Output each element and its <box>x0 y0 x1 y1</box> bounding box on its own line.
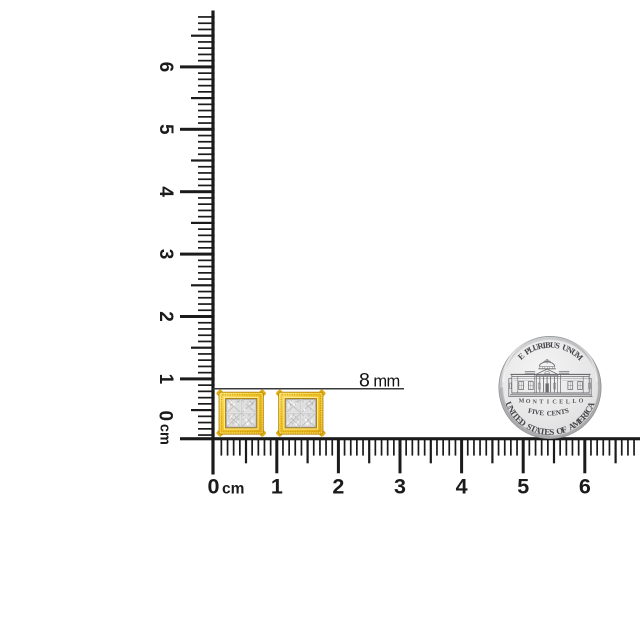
svg-text:2: 2 <box>155 311 176 322</box>
svg-text:2: 2 <box>332 475 344 499</box>
svg-text:T: T <box>539 400 543 406</box>
svg-text:N: N <box>532 399 537 405</box>
svg-text:1: 1 <box>271 475 283 499</box>
svg-text:M: M <box>519 399 525 405</box>
svg-text:4: 4 <box>155 186 176 197</box>
svg-text:E: E <box>559 400 563 406</box>
svg-text:8mm: 8mm <box>359 369 400 391</box>
svg-text:C: C <box>552 400 556 406</box>
svg-text:cm: cm <box>156 424 172 445</box>
svg-text:3: 3 <box>394 475 406 499</box>
svg-text:L: L <box>566 399 570 405</box>
svg-text:3: 3 <box>155 249 176 260</box>
svg-text:4: 4 <box>456 475 468 499</box>
svg-text:5: 5 <box>517 475 529 499</box>
svg-text:1: 1 <box>155 374 176 385</box>
svg-text:O: O <box>526 399 531 405</box>
svg-text:5: 5 <box>155 124 176 135</box>
svg-text:6: 6 <box>579 475 591 499</box>
svg-text:0: 0 <box>155 411 176 422</box>
svg-text:cm: cm <box>222 481 244 498</box>
svg-text:O: O <box>579 399 584 405</box>
svg-text:0: 0 <box>208 475 220 499</box>
svg-text:6: 6 <box>155 62 176 73</box>
svg-text:L: L <box>572 399 576 405</box>
svg-text:S: S <box>549 427 554 437</box>
